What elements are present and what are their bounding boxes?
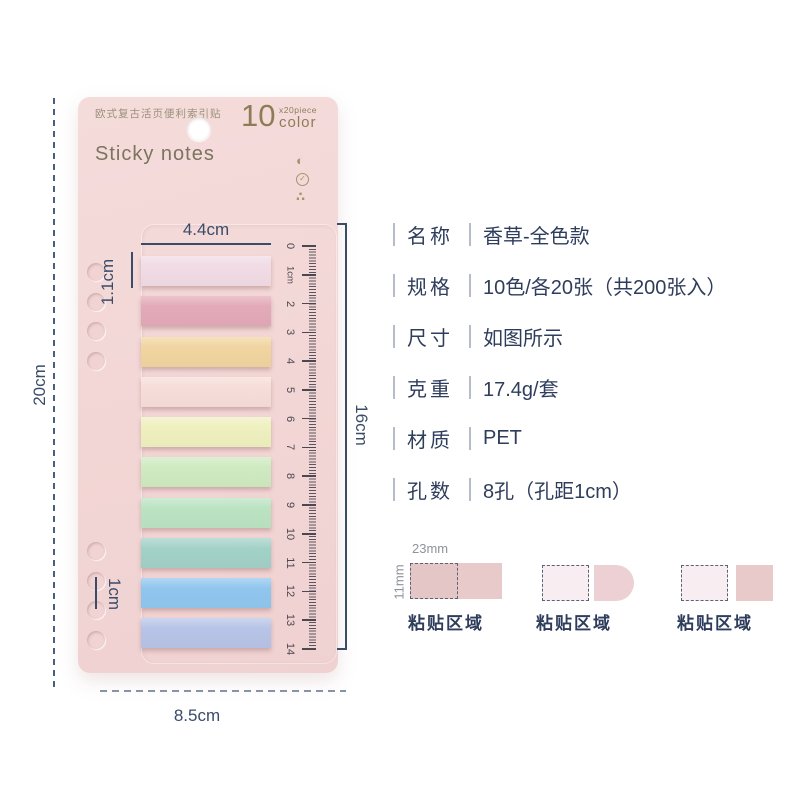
- ruler-span-cap-top: [337, 223, 346, 225]
- color-count: 10: [241, 98, 275, 134]
- ruler-cm-tick: [302, 533, 316, 535]
- sticky-strip: [141, 618, 271, 648]
- spec-divider: [469, 478, 471, 501]
- ruler-number: 2: [284, 300, 296, 306]
- adhesive-diagram-square-outline: [681, 565, 728, 601]
- adhesive-diagram-rounded-outline: [542, 565, 589, 601]
- spec-divider: [469, 427, 471, 450]
- sticky-strip: [141, 538, 271, 568]
- adhesive-zone-caption: 粘贴区域: [408, 609, 484, 634]
- ruler-number: 14: [284, 643, 296, 655]
- card-width-label: 8.5cm: [147, 706, 247, 726]
- ruler-cm-tick: [302, 591, 316, 593]
- spec-divider: [393, 427, 395, 450]
- spec-label: 名称: [407, 220, 459, 249]
- spec-value: 如图所示: [483, 322, 563, 351]
- ruler-span-line: [345, 223, 347, 650]
- card-height-label: 20cm: [30, 364, 50, 406]
- spec-divider: [393, 274, 395, 297]
- sticky-strip: [141, 296, 271, 326]
- spec-label: 规格: [407, 271, 459, 300]
- spec-row: 尺寸如图所示: [393, 322, 726, 350]
- adhesive-diagram-square-tab: [736, 565, 773, 601]
- spec-divider: [469, 274, 471, 297]
- ruler-number: 5: [284, 387, 296, 393]
- ruler-cm-tick: [302, 360, 316, 362]
- dots-triangle-icon: ∴: [296, 191, 305, 203]
- check-circle-icon: ✓: [296, 173, 309, 186]
- half-moon-icon: ◐: [296, 154, 304, 167]
- hole-spacing-label: 1cm: [104, 578, 124, 610]
- spec-divider: [393, 223, 395, 246]
- ruler-cm-tick: [302, 418, 316, 420]
- spec-value: 8孔（孔距1cm）: [483, 475, 632, 504]
- ruler-cm-tick: [302, 562, 316, 564]
- adhesive-height-label: 11mm: [392, 564, 407, 599]
- product-infographic: 欧式复古活页便利索引贴 10 x20piece color Sticky not…: [0, 0, 800, 800]
- ruler-cm-tick: [302, 447, 316, 449]
- ruler-number: 7: [284, 444, 296, 450]
- spec-value: 10色/各20张（共200张入）: [483, 271, 726, 300]
- spec-row: 名称香草-全色款: [393, 220, 726, 248]
- spec-row: 规格10色/各20张（共200张入）: [393, 271, 726, 299]
- binder-hole: [87, 542, 105, 560]
- ruler-number: 1cm: [285, 266, 296, 284]
- sticky-strip: [141, 457, 271, 487]
- adhesive-zone-outline: [410, 563, 458, 599]
- spec-divider: [393, 325, 395, 348]
- ruler-number: 12: [284, 585, 296, 597]
- binder-hole: [87, 352, 105, 370]
- sticky-strip: [141, 337, 271, 367]
- ruler-number: 11: [284, 557, 296, 568]
- ruler-number: 8: [284, 473, 296, 479]
- adhesive-width-label: 23mm: [412, 541, 448, 556]
- ruler-cm-tick: [302, 245, 316, 247]
- spec-row: 克重17.4g/套: [393, 373, 726, 401]
- sticky-strip: [141, 578, 271, 608]
- spec-value: 17.4g/套: [483, 373, 559, 402]
- spec-label: 孔数: [407, 475, 459, 504]
- sticky-strip: [141, 377, 271, 407]
- brand-title: Sticky notes: [95, 143, 215, 166]
- sticky-strip: [141, 498, 271, 528]
- sticky-strip: [141, 417, 271, 447]
- ruler-cm-tick: [302, 648, 316, 650]
- spec-divider: [393, 376, 395, 399]
- spec-row: 孔数8孔（孔距1cm）: [393, 475, 726, 503]
- ruler-span-label: 16cm: [351, 404, 371, 446]
- ruler-span-cap-bottom: [337, 648, 346, 650]
- ruler-cm-tick: [302, 332, 316, 334]
- sticky-strip: [141, 256, 271, 286]
- card-width-dashed-line: [100, 690, 346, 692]
- ruler-number: 4: [284, 358, 296, 364]
- adhesive-diagram-full-strip: [410, 563, 502, 599]
- ruler-cm-tick: [302, 303, 316, 305]
- ruler-number: 13: [284, 614, 296, 626]
- spec-row: 材质PET: [393, 424, 726, 452]
- hole-spacing-line: [95, 577, 97, 609]
- binder-hole: [87, 322, 105, 340]
- card-height-dashed-line: [53, 98, 55, 691]
- adhesive-zone-caption: 粘贴区域: [677, 609, 753, 634]
- adhesive-diagram-rounded-tab: [594, 565, 634, 601]
- spec-label: 克重: [407, 373, 459, 402]
- ruler-number: 9: [284, 502, 296, 508]
- ruler-number: 0: [284, 243, 296, 249]
- spec-divider: [393, 478, 395, 501]
- spec-list: 名称香草-全色款规格10色/各20张（共200张入）尺寸如图所示克重17.4g/…: [393, 220, 726, 526]
- strip-width-line: [141, 243, 271, 245]
- strip-width-label: 4.4cm: [141, 220, 271, 240]
- spec-label: 材质: [407, 424, 459, 453]
- ruler-number: 10: [284, 528, 296, 540]
- spec-value: 香草-全色款: [483, 220, 590, 249]
- strip-height-line: [131, 252, 133, 288]
- adhesive-zone-caption: 粘贴区域: [536, 609, 612, 634]
- strip-height-label: 1.1cm: [98, 259, 118, 305]
- spec-value: PET: [483, 427, 522, 450]
- ruler-cm-tick: [302, 504, 316, 506]
- binder-hole: [87, 631, 105, 649]
- ruler-number: 3: [284, 329, 296, 335]
- spec-divider: [469, 325, 471, 348]
- ruler-number: 6: [284, 416, 296, 422]
- ruler-cm-tick: [302, 274, 316, 276]
- ruler-cm-tick: [302, 475, 316, 477]
- hanging-hole: [187, 117, 211, 141]
- spec-label: 尺寸: [407, 322, 459, 351]
- ruler-cm-tick: [302, 389, 316, 391]
- color-count-unit: color: [279, 114, 317, 131]
- spec-divider: [469, 376, 471, 399]
- ruler-cm-tick: [302, 619, 316, 621]
- spec-divider: [469, 223, 471, 246]
